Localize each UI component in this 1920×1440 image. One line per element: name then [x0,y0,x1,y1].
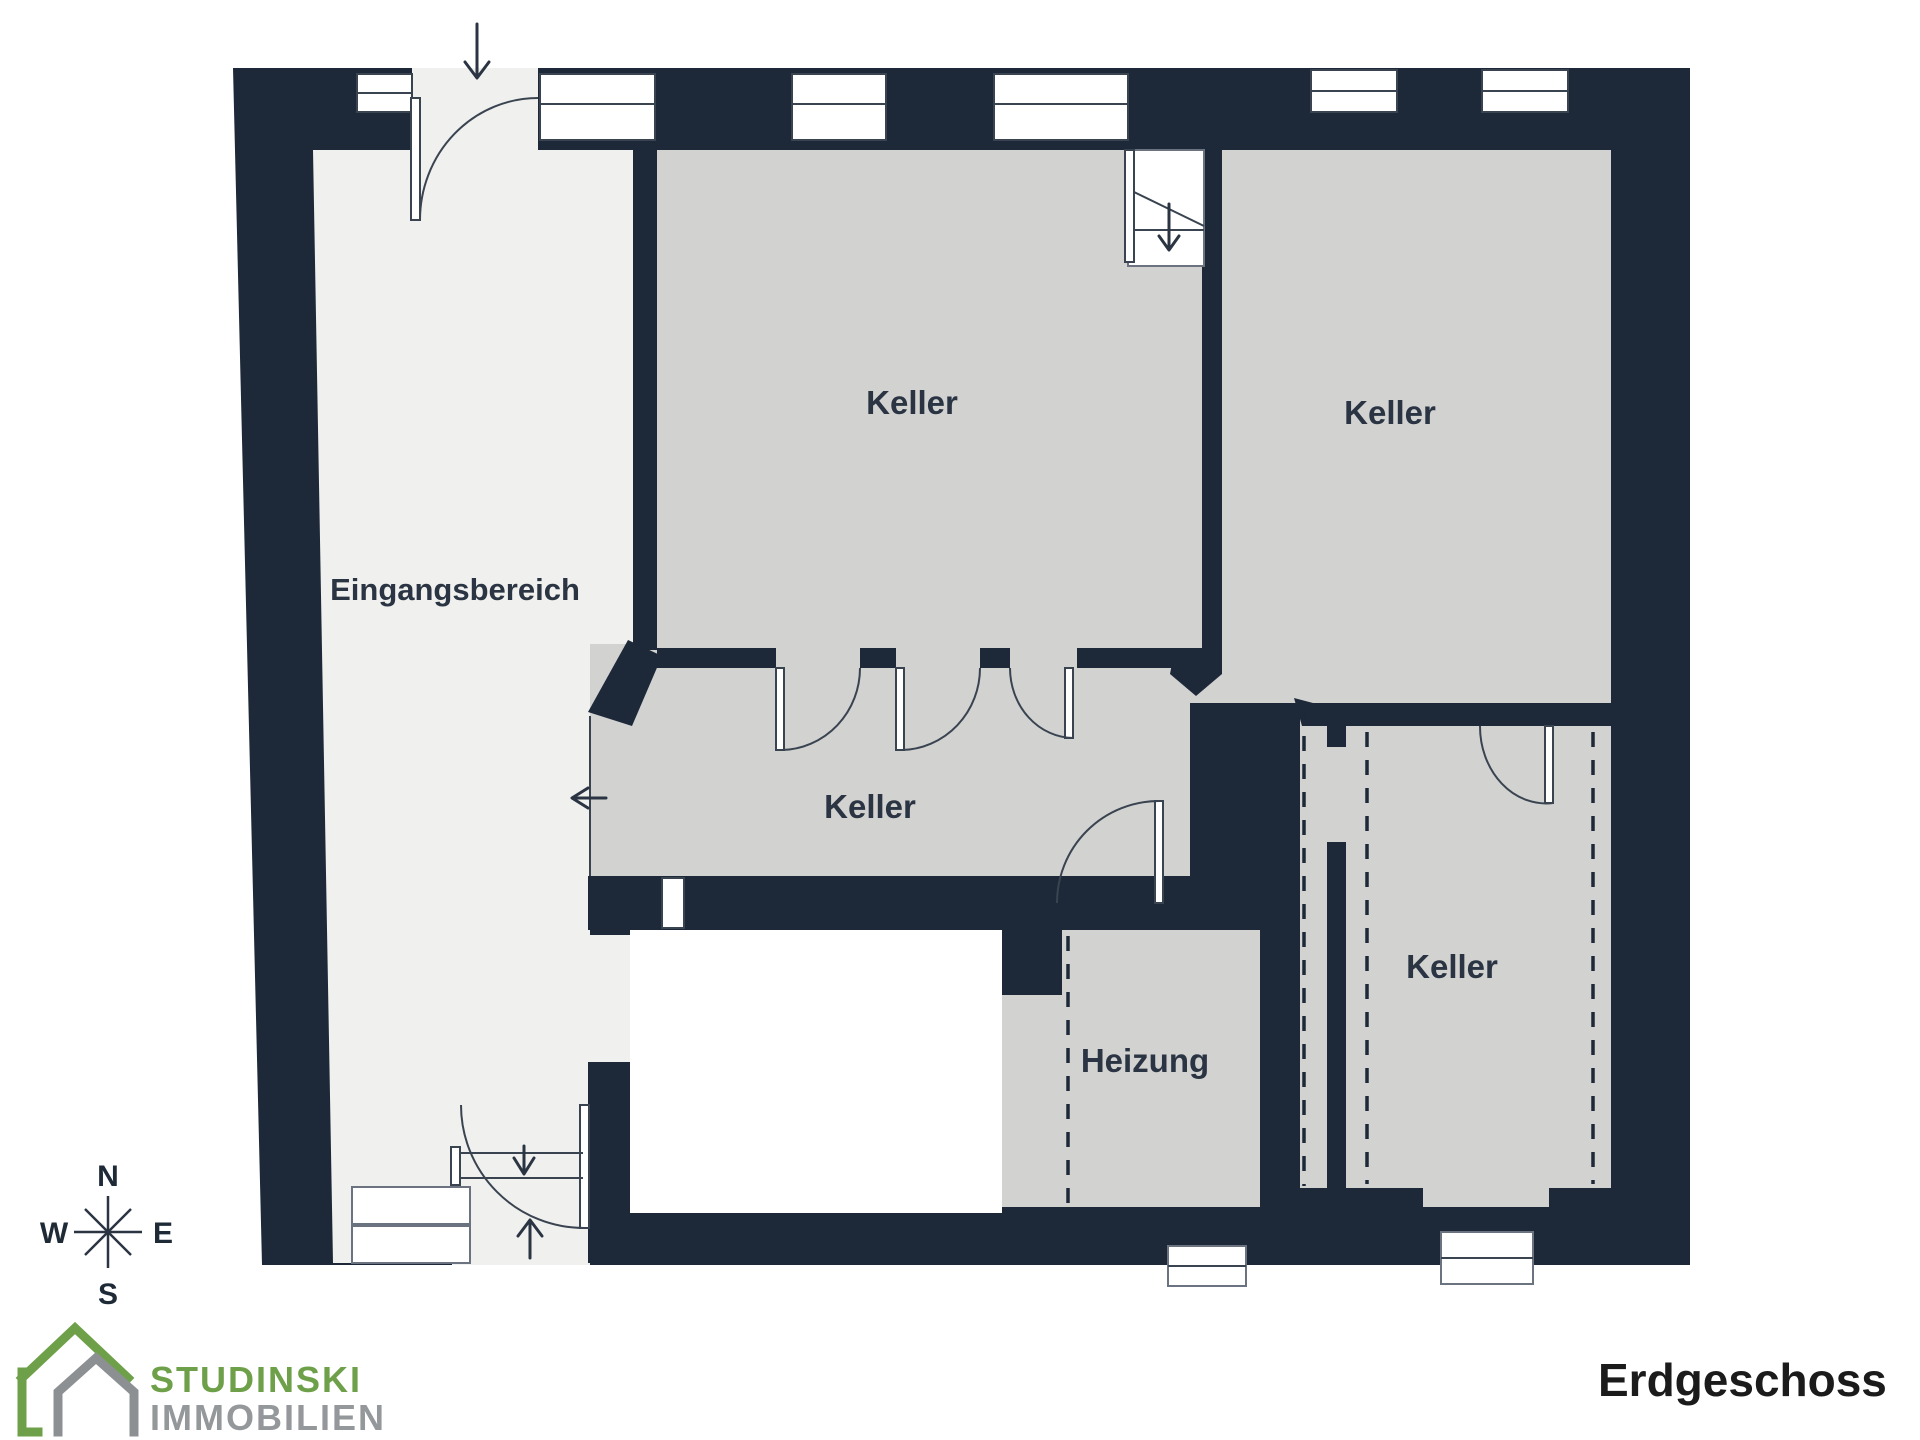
room-label-eingangsbereich: Eingangsbereich [330,572,580,607]
corridor-top-wall-2 [860,648,896,668]
window-top-4 [994,74,1128,140]
room-label-keller-bottom-right: Keller [1406,948,1498,985]
brand-division: IMMOBILIEN [150,1397,386,1438]
room-eingangsbereich [313,150,633,1263]
wall-entrance-keller [633,150,657,650]
exterior-steps-right [1441,1232,1533,1284]
corridor-top-wall-4 [1077,648,1175,668]
window-top-5 [1311,70,1397,112]
page-title: Erdgeschoss [1598,1354,1887,1406]
exit-vestibule-floor [452,1105,590,1265]
corridor-bottom-wall-right [1159,876,1300,930]
entrance-floor [412,68,538,150]
floorplan-page: Eingangsbereich Keller Keller Keller Hei… [0,0,1920,1440]
room-keller-corridor [590,644,1190,876]
window-top-1 [357,74,412,112]
room-label-heizung: Heizung [1081,1042,1209,1079]
corridor-bottom-wall-left [588,876,1070,930]
brand-logo: STUDINSKI IMMOBILIEN [22,1328,386,1438]
window-corridor-slot [662,878,684,928]
compass-icon: N S W E [40,1160,173,1311]
compass-east-label: E [153,1217,173,1250]
corridor-right-strip [1190,668,1611,703]
house-icon [22,1328,134,1432]
room-label-keller-top-right: Keller [1344,394,1436,431]
floorplan-svg: Eingangsbereich Keller Keller Keller Hei… [0,0,1920,1440]
keller-br-left-pillar [1327,842,1346,1188]
stair-step [352,1187,470,1224]
bottom-wall-under-void [630,1213,1002,1265]
exterior-steps-left [1168,1246,1246,1286]
compass-south-label: S [98,1278,118,1311]
window-top-6 [1482,70,1568,112]
corridor-top-wall-3 [980,648,1010,668]
keller-br-left-nub [1327,726,1346,747]
compass-north-label: N [97,1160,119,1193]
window-top-2 [540,74,655,140]
heizung-right-wall [1260,930,1300,1207]
stair-step [352,1226,470,1263]
stairs-top-icon [1125,150,1204,266]
keller-br-top-wall [1313,703,1611,726]
void-area [630,930,1002,1213]
corridor-top-wall-1 [657,648,776,668]
passage-door-gap [1327,747,1346,842]
window-top-3 [792,74,886,140]
compass-west-label: W [40,1217,69,1250]
room-label-keller-corridor: Keller [824,788,916,825]
brand-name: STUDINSKI [150,1359,362,1400]
room-label-keller-top-left: Keller [866,384,958,421]
